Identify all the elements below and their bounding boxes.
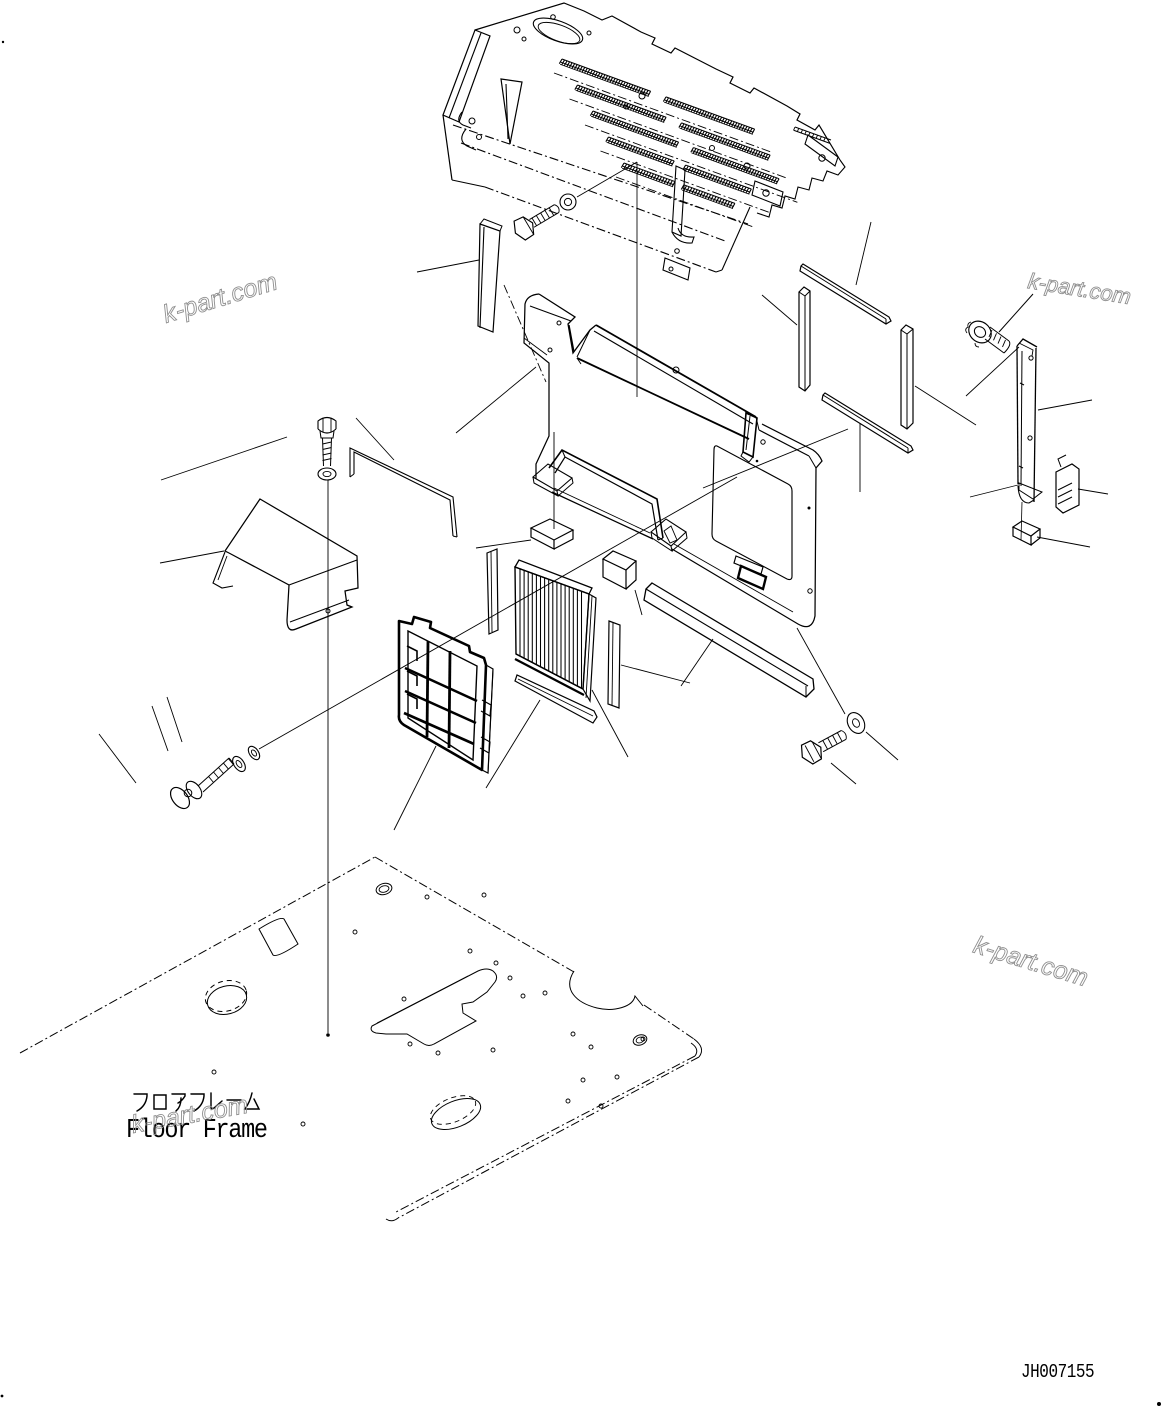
svg-text:JH007155: JH007155 bbox=[1021, 1362, 1094, 1384]
